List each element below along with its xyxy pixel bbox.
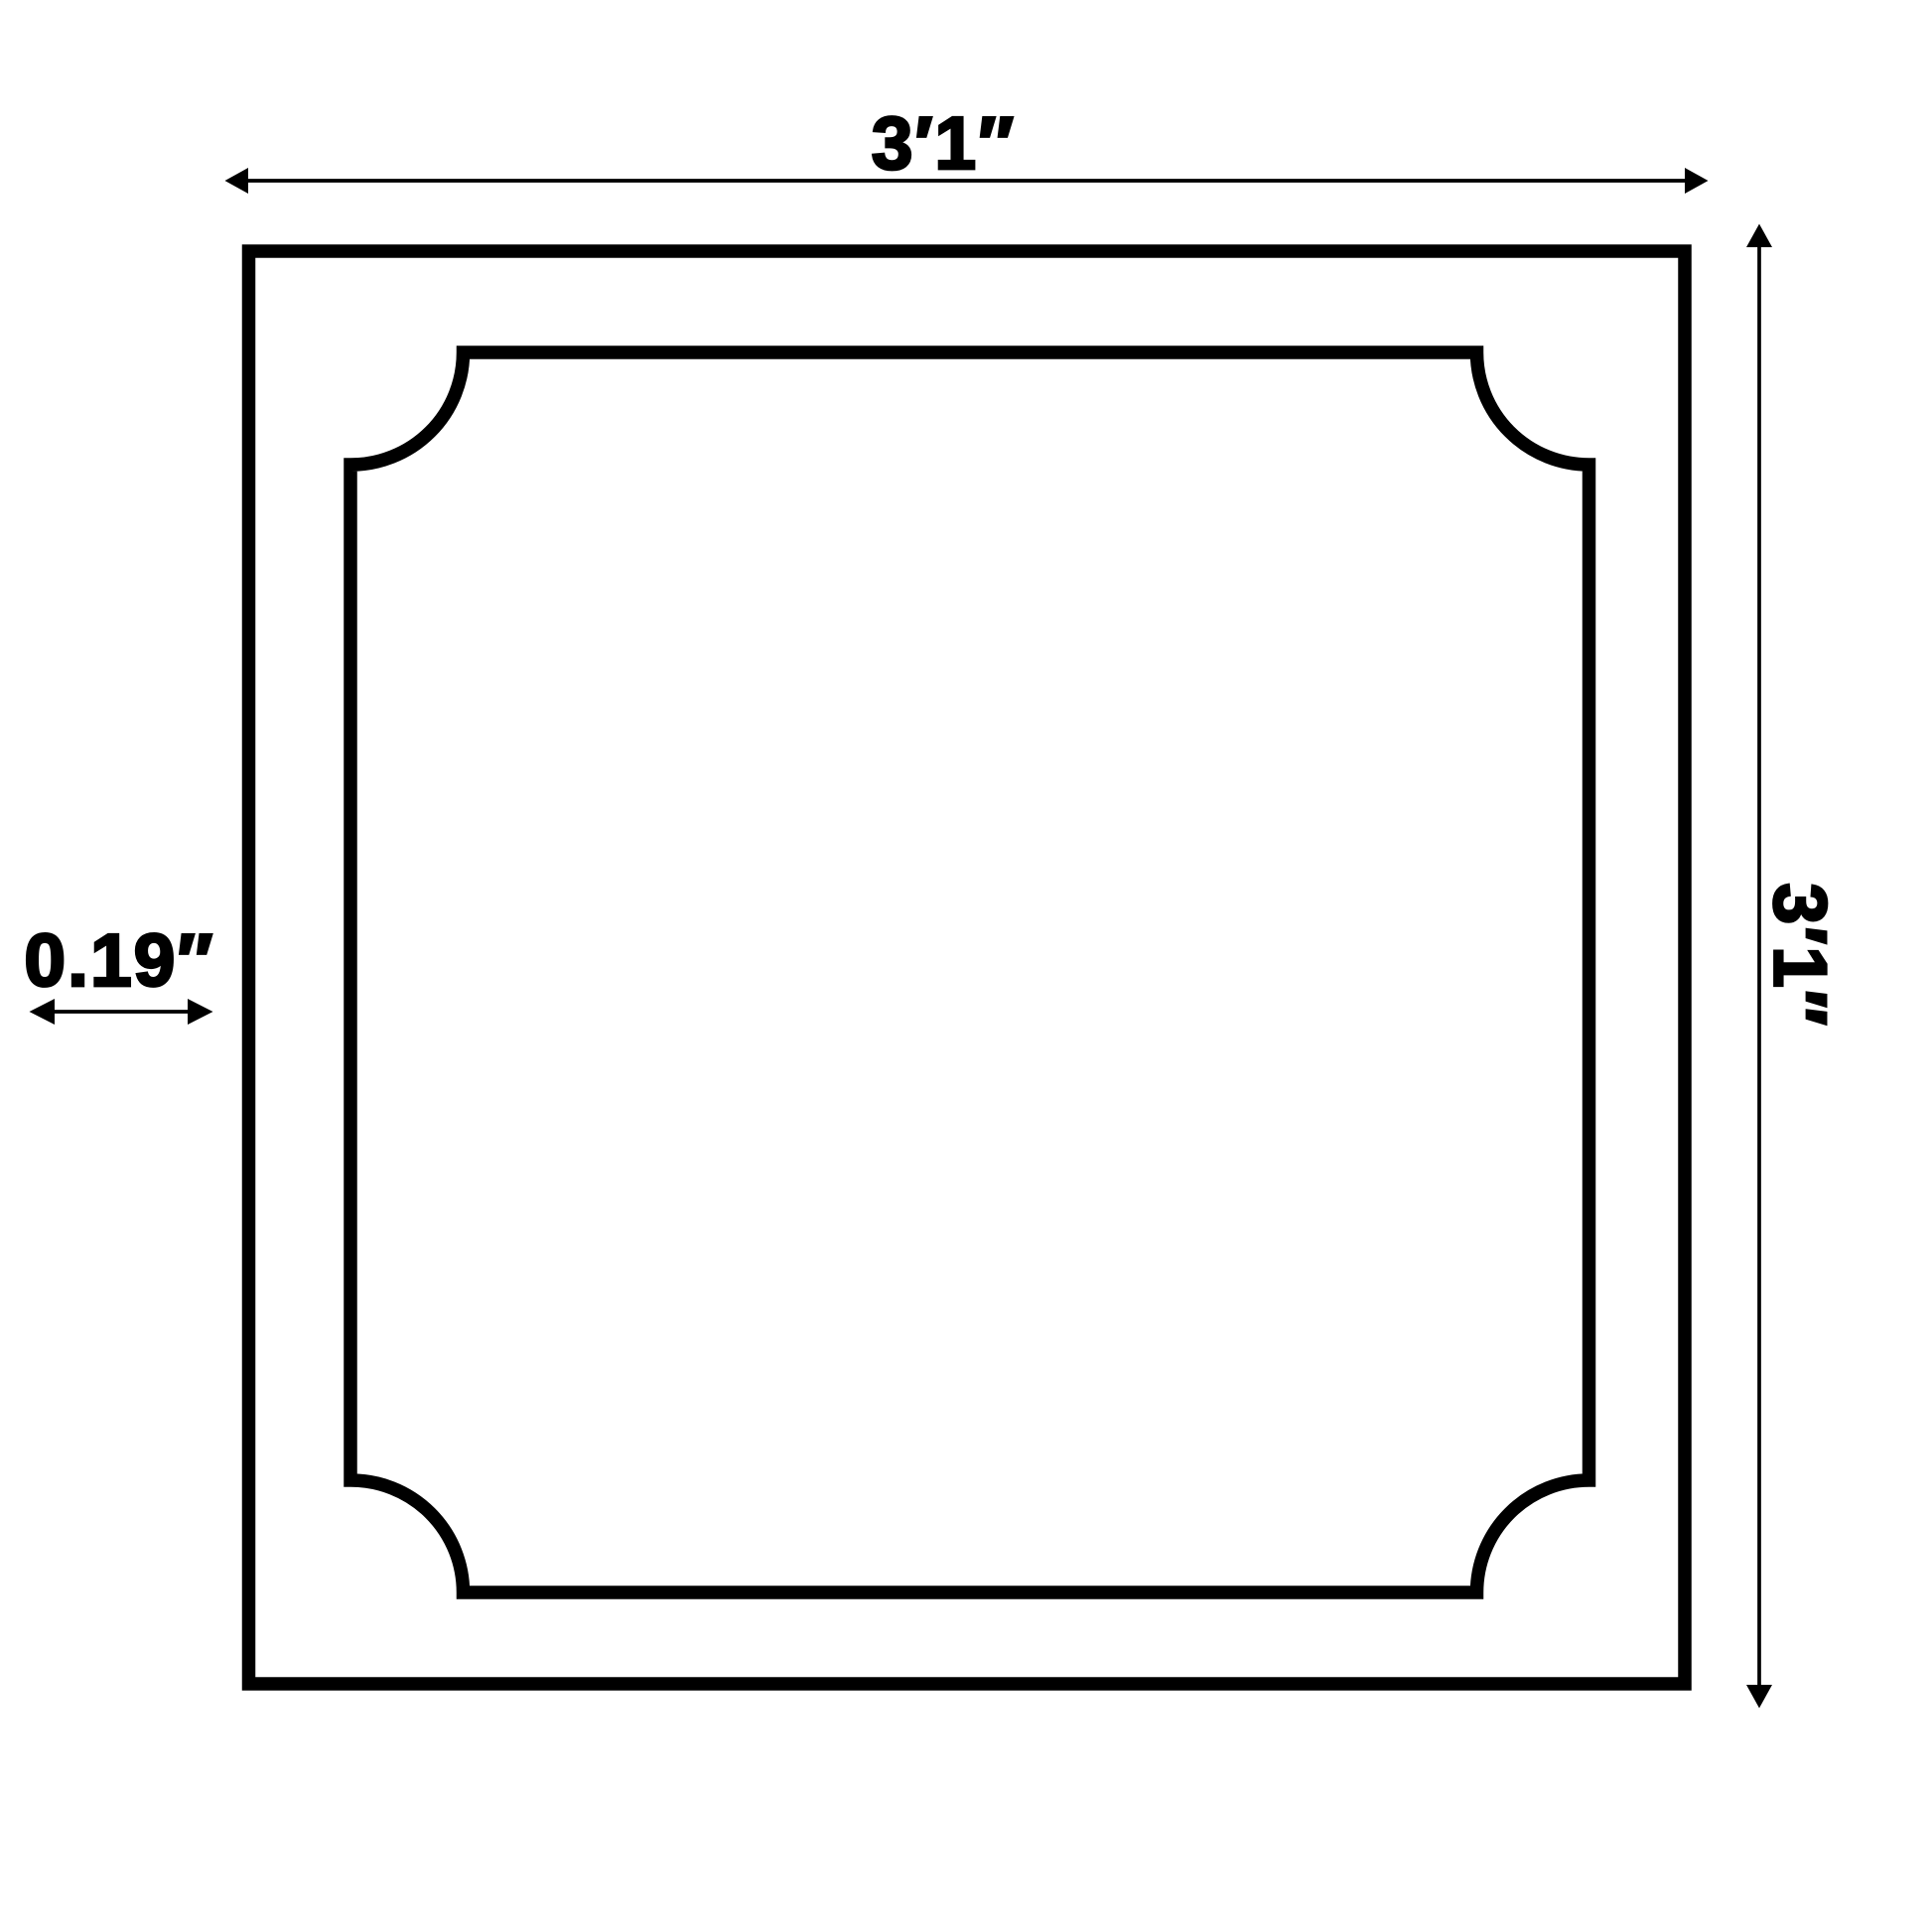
svg-text:0.19″: 0.19″ (24, 918, 214, 1002)
svg-text:3′1″: 3′1″ (1758, 883, 1842, 1027)
svg-text:3′1″: 3′1″ (872, 101, 1016, 185)
